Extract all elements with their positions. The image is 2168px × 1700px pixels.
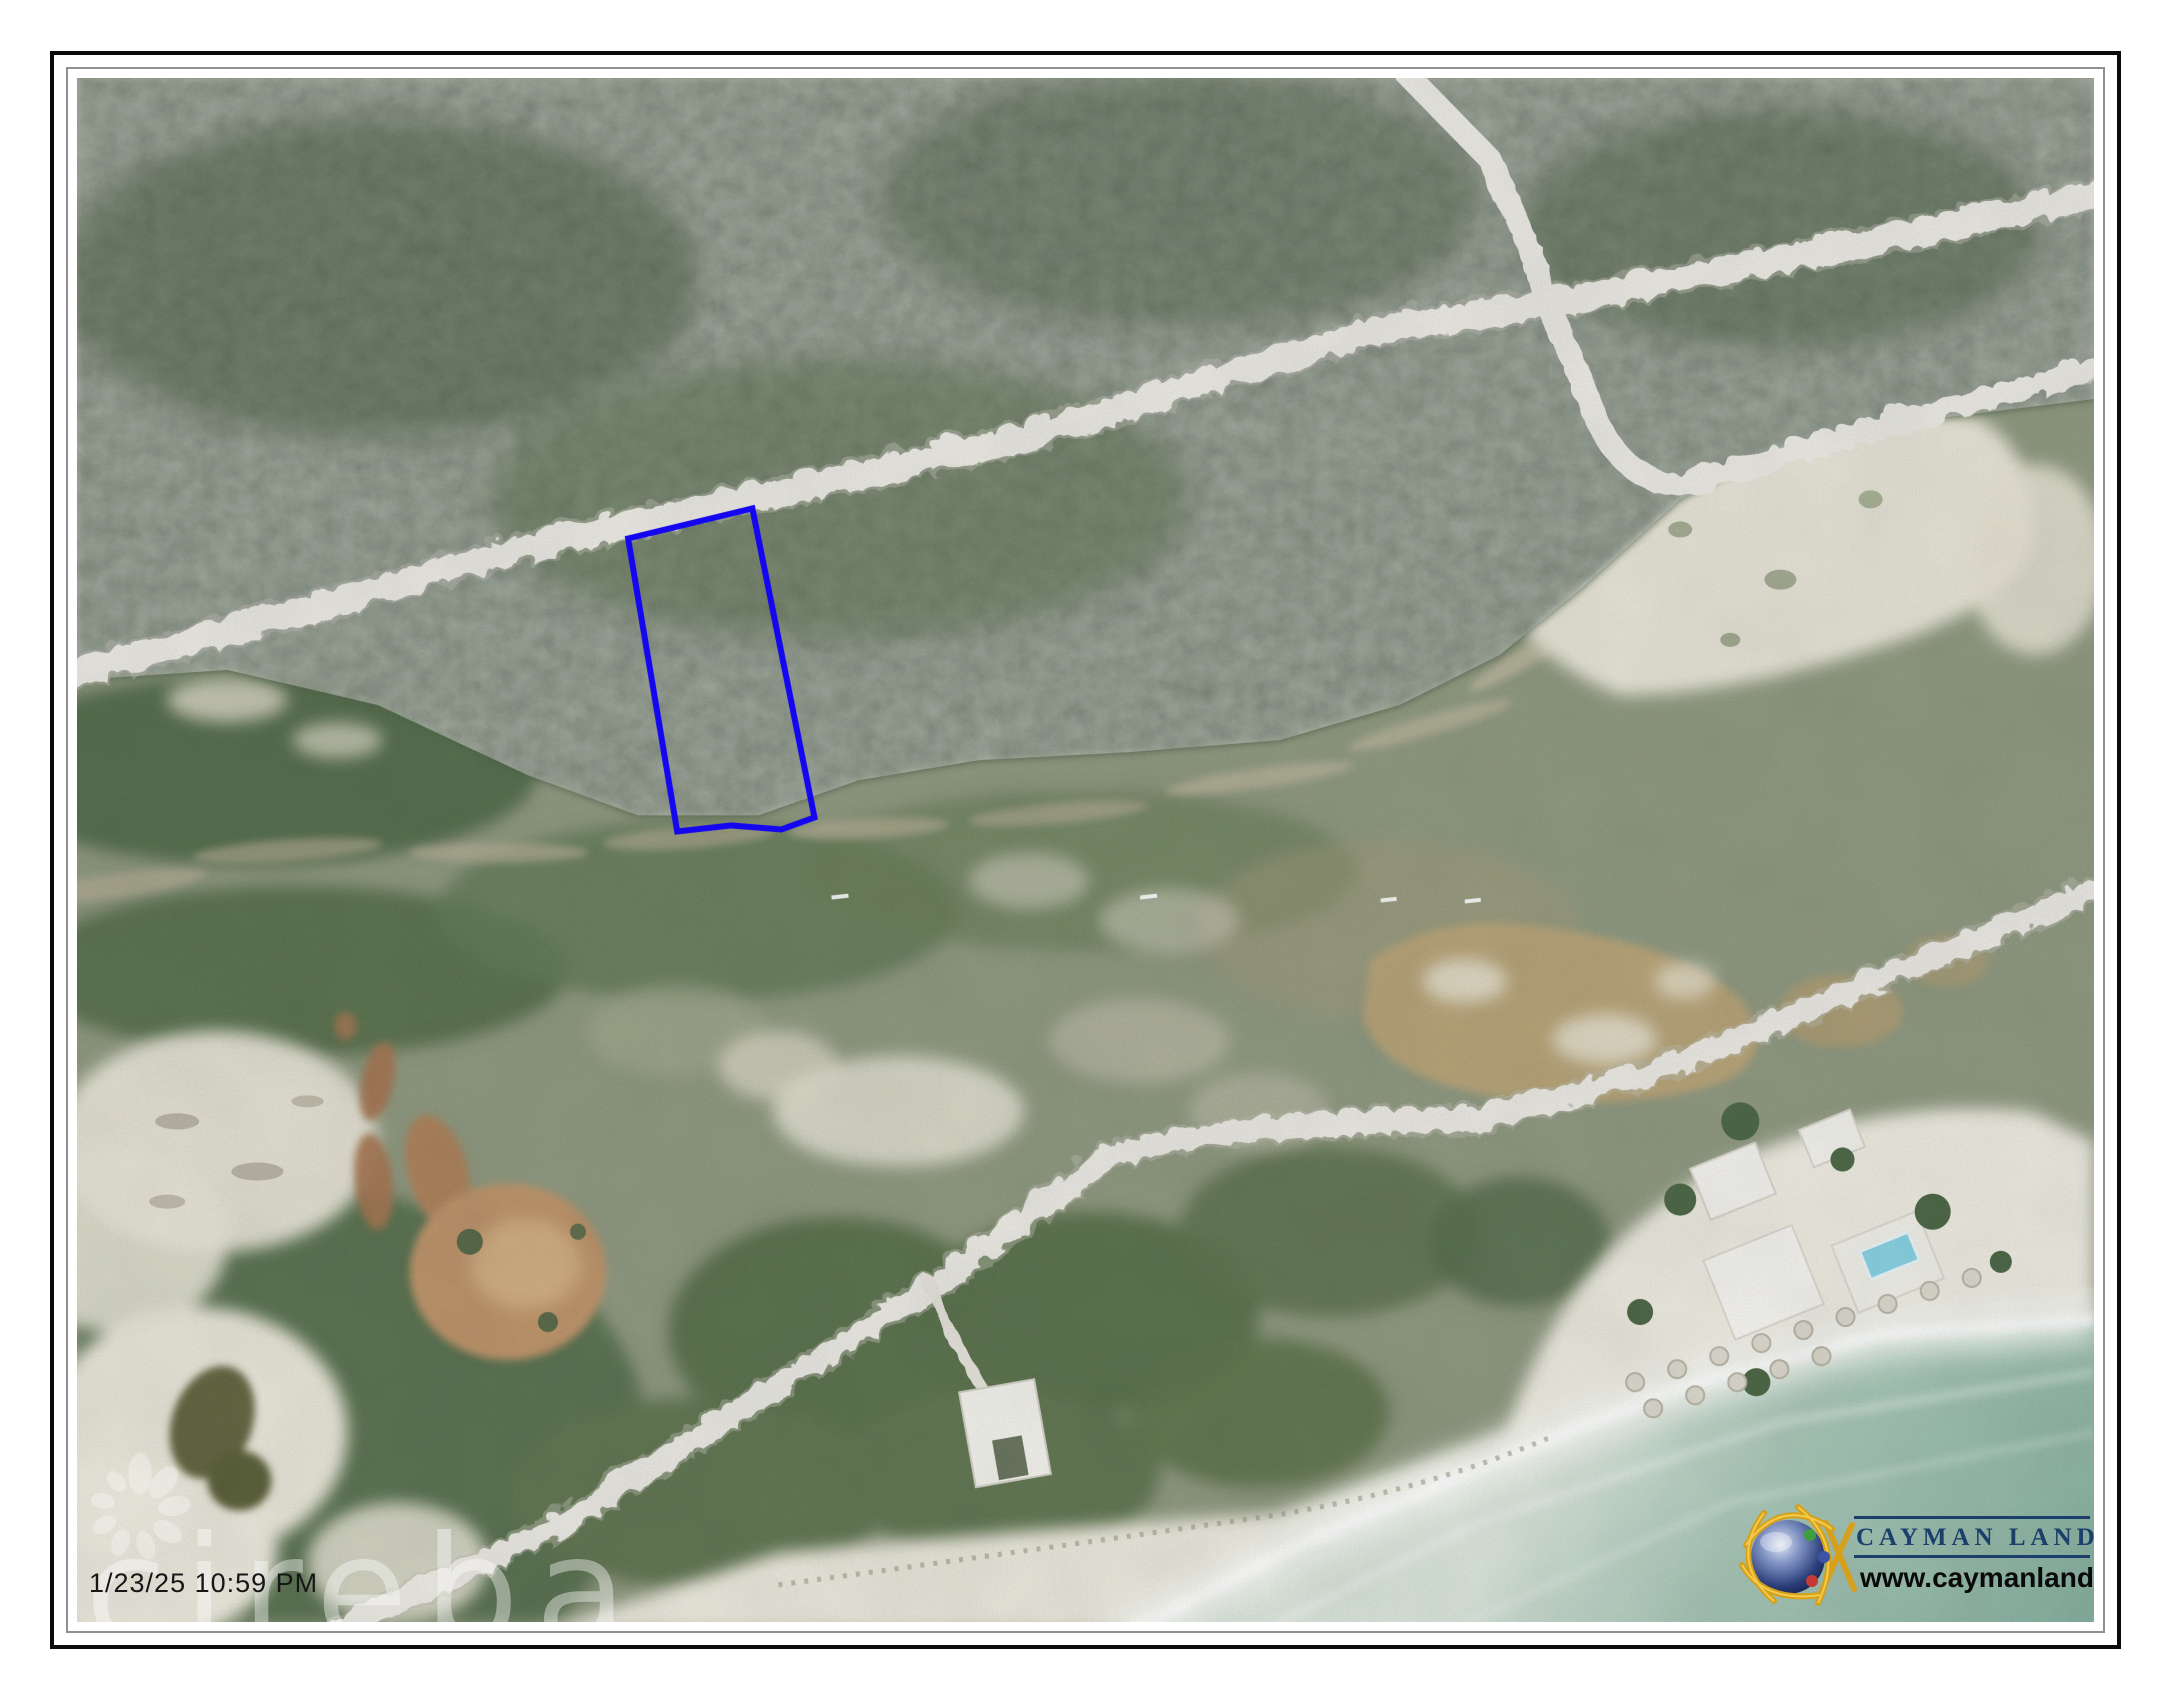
brand-text: CAYMAN LAND INFO www.caymanlandinfo.ky xyxy=(1854,1516,2090,1594)
outer-frame: cireba 1/23/25 10:59 PM xyxy=(50,51,2121,1649)
light-speckle xyxy=(77,78,2094,1622)
aerial-map: cireba 1/23/25 10:59 PM xyxy=(77,78,2094,1622)
red-dot-icon xyxy=(1806,1575,1818,1587)
brand-name: CAYMAN LAND INFO xyxy=(1854,1521,2090,1553)
rule-bottom xyxy=(1854,1555,2090,1558)
blue-dot-icon xyxy=(1818,1551,1830,1563)
rule-top xyxy=(1854,1516,2090,1519)
green-dot-icon xyxy=(1804,1529,1816,1541)
brand-logo: CAYMAN LAND INFO www.caymanlandinfo.ky xyxy=(1732,1506,2092,1616)
timestamp: 1/23/25 10:59 PM xyxy=(89,1568,318,1599)
brand-website: www.caymanlandinfo.ky xyxy=(1854,1562,2090,1594)
aerial-photo xyxy=(77,78,2094,1622)
inner-frame: cireba 1/23/25 10:59 PM xyxy=(66,67,2105,1633)
map-document-page: cireba 1/23/25 10:59 PM xyxy=(0,0,2168,1700)
globe-icon xyxy=(1732,1500,1864,1618)
